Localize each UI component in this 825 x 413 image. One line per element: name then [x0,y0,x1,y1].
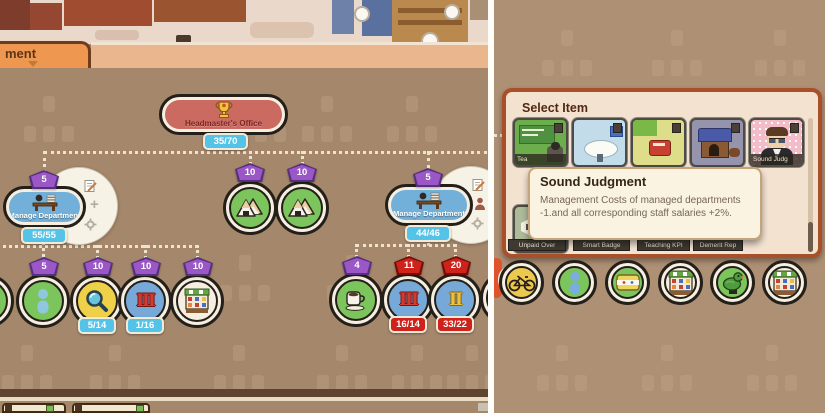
trophy-icon [214,101,234,119]
progress-badge-alert: 16/14 [389,316,427,333]
item-label[interactable]: Smart Badge [573,239,630,251]
picture-frame-icon [613,123,622,133]
item-thumb-meeting-room[interactable] [572,118,627,167]
progress-badge: 1/16 [126,317,164,334]
item-thumb-sound-judgment[interactable]: Sound Judg [749,118,804,167]
desk-icon [30,194,60,211]
item-thumb-dog-house[interactable] [690,118,745,167]
picture-frame-icon [790,123,799,133]
pillar-iii-icon: III [387,279,429,321]
tooltip-title: Sound Judgment [540,174,646,189]
watermark-org-tree [561,30,573,46]
level-badge: 10 [131,257,161,276]
manage-department-node-left[interactable]: Manage Department [3,186,86,228]
store-icon [768,266,801,299]
dog-house-door [709,144,719,156]
connector [427,151,430,169]
wall [633,120,657,136]
picture-frame-icon [554,123,563,133]
toolbar-icon [46,405,54,412]
teacher-head [551,142,560,150]
watermark-org-tree [774,30,786,46]
magnifier-icon [76,280,118,322]
map-building [154,0,246,22]
chevron-down-icon [28,61,38,67]
level-badge: 5 [413,168,443,187]
toolbar-icon [75,404,82,411]
level-badge: 4 [342,256,372,275]
skill-node-partial[interactable] [0,274,14,328]
store-icon [664,266,697,299]
person-icon [22,280,64,322]
glasses [769,138,785,143]
cafeteria-node[interactable] [275,181,329,235]
tab-label: ment [5,46,36,61]
level-badge: 5 [29,170,59,189]
manage-department-node-right[interactable]: Manage Department [385,184,473,226]
headmaster-count-badge: 35/70 [203,133,248,150]
item-circle-bicycle[interactable] [499,260,544,305]
bottom-border [0,389,488,397]
item-circle-lunchbox[interactable] [605,260,650,305]
gear-icon[interactable] [471,217,484,235]
item-thumb-teacher-room[interactable]: Tea [513,118,568,167]
management-tab[interactable]: ment [0,41,91,68]
shop-node[interactable] [170,274,224,328]
toolbar-strip [478,403,488,411]
map-building [398,20,462,25]
level-badge-alert: 11 [394,256,424,275]
watermark-org-tree [406,96,418,112]
app: ment [0,0,825,413]
watermark-org-tree [239,255,251,271]
level-badge: 10 [83,257,113,276]
header-band [91,45,488,68]
chalk-marks [522,129,544,131]
level-badge: 10 [235,163,265,182]
kotatsu-top [653,143,665,146]
department-label: Manage Department [9,211,80,220]
dog-house-roof [698,128,732,142]
map-building [332,0,354,34]
toolbar-icon [5,404,12,411]
item-tooltip: Sound Judgment Management Costs of manag… [528,167,762,240]
item-label[interactable]: Unpaid Over [508,239,566,251]
lunchbox-icon [611,266,644,299]
watermark-org-tree [671,30,683,46]
select-item-screen: Select Item Tea [494,0,825,413]
level-badge: 5 [29,257,59,276]
desk-icon [414,192,444,209]
bottom-toolbar [0,401,488,413]
item-label[interactable]: Demerit Rep [693,239,743,251]
connector [44,151,487,154]
map-bubble[interactable] [444,4,460,20]
watermark-org-tree [411,345,423,361]
watermark-org-tree [661,345,673,361]
tooltip-body: Management Costs of managed departments … [540,194,758,220]
level-badge: 10 [183,257,213,276]
item-circle-store[interactable] [762,260,807,305]
watermark-org-tree [336,345,348,361]
item-circle-store[interactable] [658,260,703,305]
staff-count-badge: 55/55 [21,227,67,244]
watermark-org-tree [233,345,245,361]
town-map[interactable] [0,0,488,44]
staff-icon[interactable] [474,197,486,215]
man-hair [766,127,788,136]
watermark-org-tree [766,345,778,361]
map-building [30,3,62,30]
bicycle-icon [505,266,538,299]
onigiri-icon [281,187,323,229]
dog-sprite [729,148,740,157]
item-circle-duck-ride[interactable] [710,260,755,305]
picture-frame-icon [731,123,740,133]
map-search-bubble[interactable] [354,6,370,22]
department-label: Manage Department [393,209,465,218]
connector [356,244,456,247]
cafeteria-node[interactable] [223,181,277,235]
gear-icon[interactable] [84,218,97,236]
pillar-ii-icon: II [434,279,476,321]
onigiri-icon [229,187,271,229]
item-label[interactable]: Teaching KPI [637,239,690,251]
item-circle-staff[interactable] [552,260,597,305]
scrollbar-thumb[interactable] [808,222,813,252]
level-badge: 10 [287,163,317,182]
add-button[interactable]: + [90,196,99,213]
watermark-org-tree [556,345,568,361]
pillar-iii-icon: III [124,280,166,322]
duck-ride-icon [716,266,749,299]
table-stand [597,154,603,162]
map-building [64,0,152,26]
headmaster-label: Headmaster's Office [185,119,262,128]
chalk-marks [522,134,538,136]
level-badge-alert: 20 [441,256,471,275]
cafe-node[interactable] [329,273,383,327]
progress-badge-alert: 33/22 [436,316,474,333]
map-building [0,0,30,30]
watermark-org-tree [21,345,33,361]
org-chart-screen: ment [0,0,488,413]
watermark-org-tree [466,345,478,361]
watermark-org-tree [109,345,121,361]
panel-title: Select Item [522,101,588,115]
map-path [250,22,314,38]
progress-badge: 5/14 [78,317,116,334]
item-thumb-study-room[interactable] [631,118,686,167]
map-path [95,30,139,40]
picture-frame-icon [672,123,681,133]
watermark-org-tree [321,96,333,112]
item-label: Sound Judg [751,154,802,165]
toolbar-icon [136,405,144,412]
headmaster-office-node[interactable]: Headmaster's Office [159,94,288,135]
watermark-org-tree [43,96,55,112]
item-label: Tea [515,154,566,165]
store-icon [176,280,218,322]
coffee-icon [335,279,377,321]
connector [3,245,198,248]
map-building [470,0,488,20]
staff-count-badge: 44/46 [405,225,451,242]
staff-node[interactable] [16,274,70,328]
person-icon [558,266,591,299]
edit-document-icon[interactable] [472,178,485,197]
